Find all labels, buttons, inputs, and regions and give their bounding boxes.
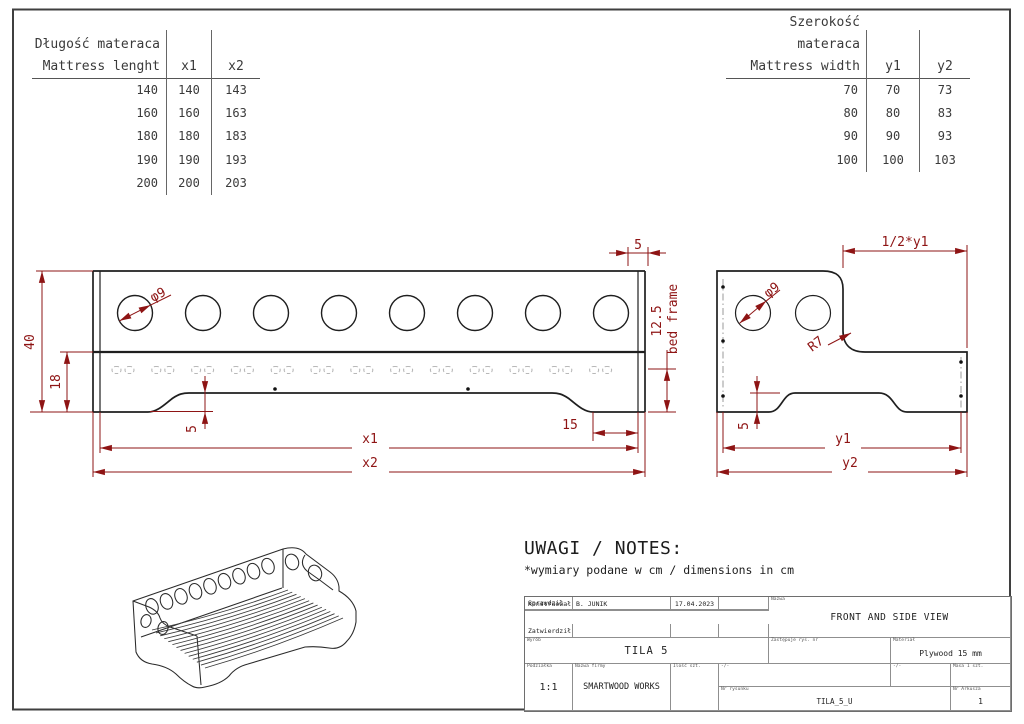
empty-cell bbox=[573, 624, 671, 638]
iso-side-hole bbox=[283, 552, 301, 571]
iso-head-hole bbox=[139, 613, 152, 628]
table-title-pl: Szerokość materaca bbox=[726, 12, 860, 56]
table-cell: 80 bbox=[867, 102, 919, 125]
mattress-width-table: Szerokość materaca Mattress width 70 80 … bbox=[726, 30, 970, 172]
approved-label: Zatwierdził bbox=[525, 624, 572, 637]
empty-cell bbox=[671, 597, 719, 610]
material-value: Plywood 15 mm bbox=[891, 638, 1010, 663]
checked-label: Sprawdził bbox=[525, 597, 572, 609]
notes-line: *wymiary podane w cm / dimensions in cm bbox=[524, 563, 794, 577]
iso-side-hole bbox=[306, 563, 324, 582]
table-cell: 180 bbox=[32, 125, 166, 148]
title-block: Konstruował B. JUNIK 17.04.2023 Sprawdzi… bbox=[524, 596, 1012, 712]
empty-cell bbox=[719, 624, 769, 638]
notes-heading: UWAGI / NOTES: bbox=[524, 538, 794, 559]
iso-slats bbox=[152, 590, 343, 668]
table-title-en: Mattress width bbox=[726, 56, 860, 78]
dim-foot-inset: 15 bbox=[562, 418, 578, 433]
column-header-y2: y2 bbox=[920, 30, 970, 79]
dim-foot-height: 5 bbox=[737, 422, 752, 430]
table-cell: 100 bbox=[726, 149, 866, 172]
dim-corner-radius: R7 bbox=[805, 334, 827, 355]
table-cell: 190 bbox=[167, 149, 211, 172]
side-view-drawing bbox=[717, 271, 967, 412]
dim-x2: x2 bbox=[362, 456, 378, 471]
dim-upper-height: 18 bbox=[49, 374, 64, 390]
table-cell: 193 bbox=[212, 149, 260, 172]
dim-half-width: 1/2*y1 bbox=[882, 235, 929, 250]
slat-hidden-dashes bbox=[112, 367, 612, 374]
table-header: Długość materaca Mattress lenght bbox=[32, 30, 166, 79]
table-cell: 100 bbox=[867, 149, 919, 172]
empty-cell bbox=[573, 597, 671, 610]
table-cell: 180 bbox=[167, 125, 211, 148]
dim-y2: y2 bbox=[842, 456, 858, 471]
empty-cell bbox=[719, 597, 769, 610]
table-cell: 80 bbox=[726, 102, 866, 125]
isometric-view bbox=[133, 548, 356, 688]
iso-back-holes bbox=[144, 557, 277, 616]
table-title-en: Mattress lenght bbox=[32, 56, 160, 78]
table-cell: 163 bbox=[212, 102, 260, 125]
dim-frame-label: bed frame bbox=[666, 284, 681, 355]
table-title-pl: Długość materaca bbox=[32, 34, 160, 56]
dim-hole-diameter: φ9 bbox=[761, 280, 783, 301]
mattress-length-table: Długość materaca Mattress lenght 140 160… bbox=[32, 30, 260, 195]
dim-x1: x1 bbox=[362, 432, 378, 447]
table-header: Szerokość materaca Mattress width bbox=[726, 30, 866, 79]
dim-hole-diameter: φ9 bbox=[148, 285, 169, 306]
drawing-title: FRONT AND SIDE VIEW bbox=[769, 597, 1010, 637]
screw-dots bbox=[273, 387, 470, 391]
scale-value: 1:1 bbox=[525, 664, 572, 710]
table-cell: 90 bbox=[726, 125, 866, 148]
table-cell: 200 bbox=[167, 172, 211, 195]
column-header-x2: x2 bbox=[212, 30, 260, 79]
notes-section: UWAGI / NOTES: *wymiary podane w cm / di… bbox=[524, 538, 794, 577]
empty-cell bbox=[671, 624, 719, 638]
table-cell: 160 bbox=[32, 102, 166, 125]
table-cell: 203 bbox=[212, 172, 260, 195]
sheet-number: 1 bbox=[951, 687, 1010, 710]
dim-frame-height: 12.5 bbox=[650, 305, 665, 336]
quantity-label: Ilość szt. bbox=[673, 664, 701, 670]
drawing-number: TILA_5_U bbox=[719, 687, 950, 710]
product-name: TILA 5 bbox=[525, 638, 768, 663]
column-header-y1: y1 bbox=[867, 30, 919, 79]
mass-label: Masa 1 szt. bbox=[953, 664, 983, 670]
table-cell: 190 bbox=[32, 149, 166, 172]
table-cell: 183 bbox=[212, 125, 260, 148]
table-cell: 143 bbox=[212, 79, 260, 102]
dim-total-height: 40 bbox=[23, 334, 38, 350]
table-cell: 160 bbox=[167, 102, 211, 125]
misc-label: -/- bbox=[893, 664, 901, 670]
replaces-label: Zastępuje rys. nr bbox=[771, 638, 818, 644]
table-cell: 70 bbox=[867, 79, 919, 102]
table-cell: 140 bbox=[32, 79, 166, 102]
table-cell: 90 bbox=[867, 125, 919, 148]
drawing-sheet: 40 18 φ9 5 12.5 bed frame 15 5 x1 bbox=[0, 0, 1024, 724]
front-view-drawing bbox=[93, 271, 645, 412]
front-view-dimensions: 40 18 φ9 5 12.5 bed frame 15 5 x1 bbox=[23, 238, 681, 477]
table-cell: 83 bbox=[920, 102, 970, 125]
table-cell: 140 bbox=[167, 79, 211, 102]
company-name: SMARTWOOD WORKS bbox=[573, 664, 670, 710]
table-cell: 73 bbox=[920, 79, 970, 102]
table-cell: 103 bbox=[920, 149, 970, 172]
column-header-x1: x1 bbox=[167, 30, 211, 79]
table-cell: 70 bbox=[726, 79, 866, 102]
dim-edge-offset: 5 bbox=[634, 238, 642, 253]
dim-y1: y1 bbox=[835, 432, 851, 447]
table-cell: 93 bbox=[920, 125, 970, 148]
misc-label: -/- bbox=[721, 664, 729, 670]
table-cell: 200 bbox=[32, 172, 166, 195]
front-holes-row bbox=[118, 296, 629, 331]
dim-foot-height: 5 bbox=[185, 425, 200, 433]
